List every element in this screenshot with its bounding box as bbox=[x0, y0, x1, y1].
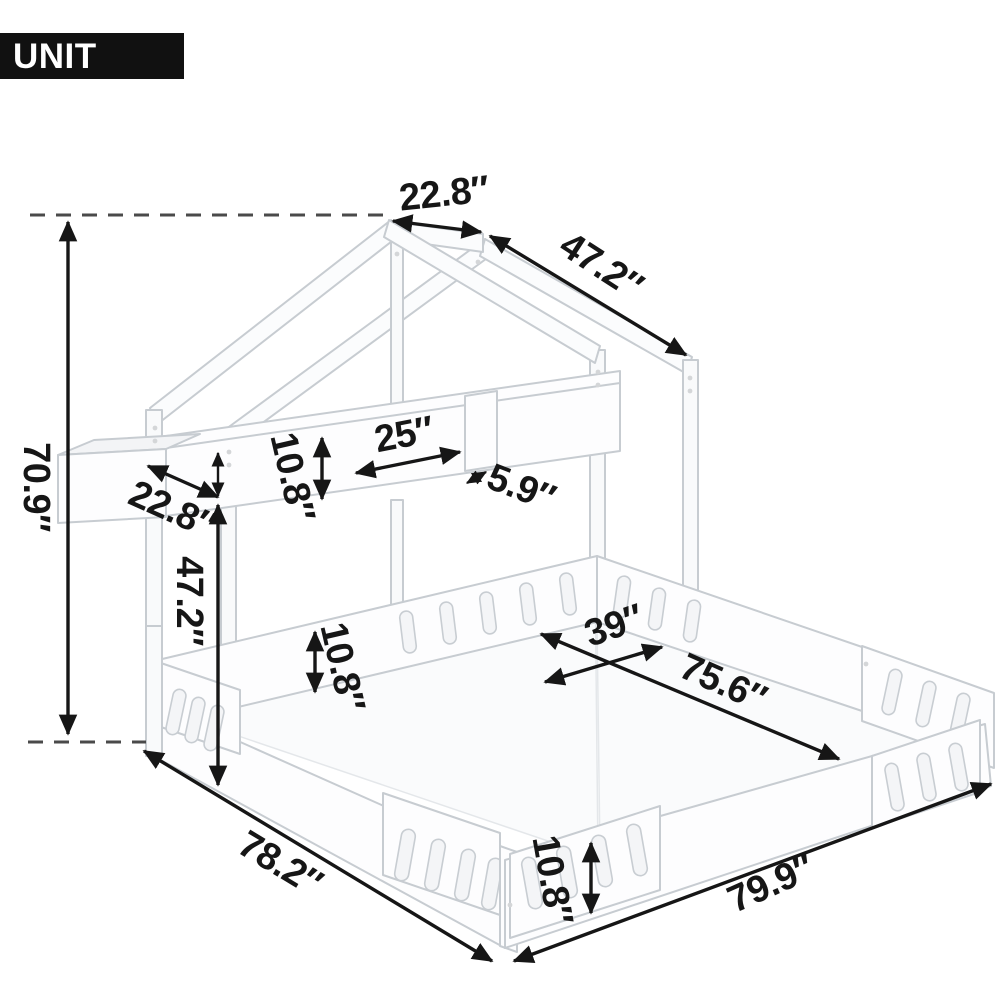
shelf-middle-divider bbox=[465, 391, 497, 471]
unit-badge-label: UNIT INCH bbox=[13, 37, 101, 123]
unit-badge: UNIT INCH bbox=[0, 33, 184, 79]
arrow-shelf-divider bbox=[467, 472, 486, 483]
post-front-left-lower bbox=[146, 626, 162, 756]
diagram-svg: 70.9″ 22.8″ 47.2″ 22.8″ 10.8″ 25″ 5.9″ 4… bbox=[0, 0, 1000, 1000]
post-back-right bbox=[683, 360, 698, 608]
dim-under-shelf-clearance: 47.2″ bbox=[168, 556, 210, 646]
dim-shelf-divider-width: 5.9″ bbox=[481, 456, 561, 520]
house-bed-dimension-diagram: 70.9″ 22.8″ 47.2″ 22.8″ 10.8″ 25″ 5.9″ 4… bbox=[0, 0, 1000, 1000]
post-center-lower bbox=[391, 500, 403, 606]
dim-total-height: 70.9″ bbox=[15, 442, 57, 532]
dim-roof-ridge-depth: 22.8″ bbox=[397, 168, 491, 219]
